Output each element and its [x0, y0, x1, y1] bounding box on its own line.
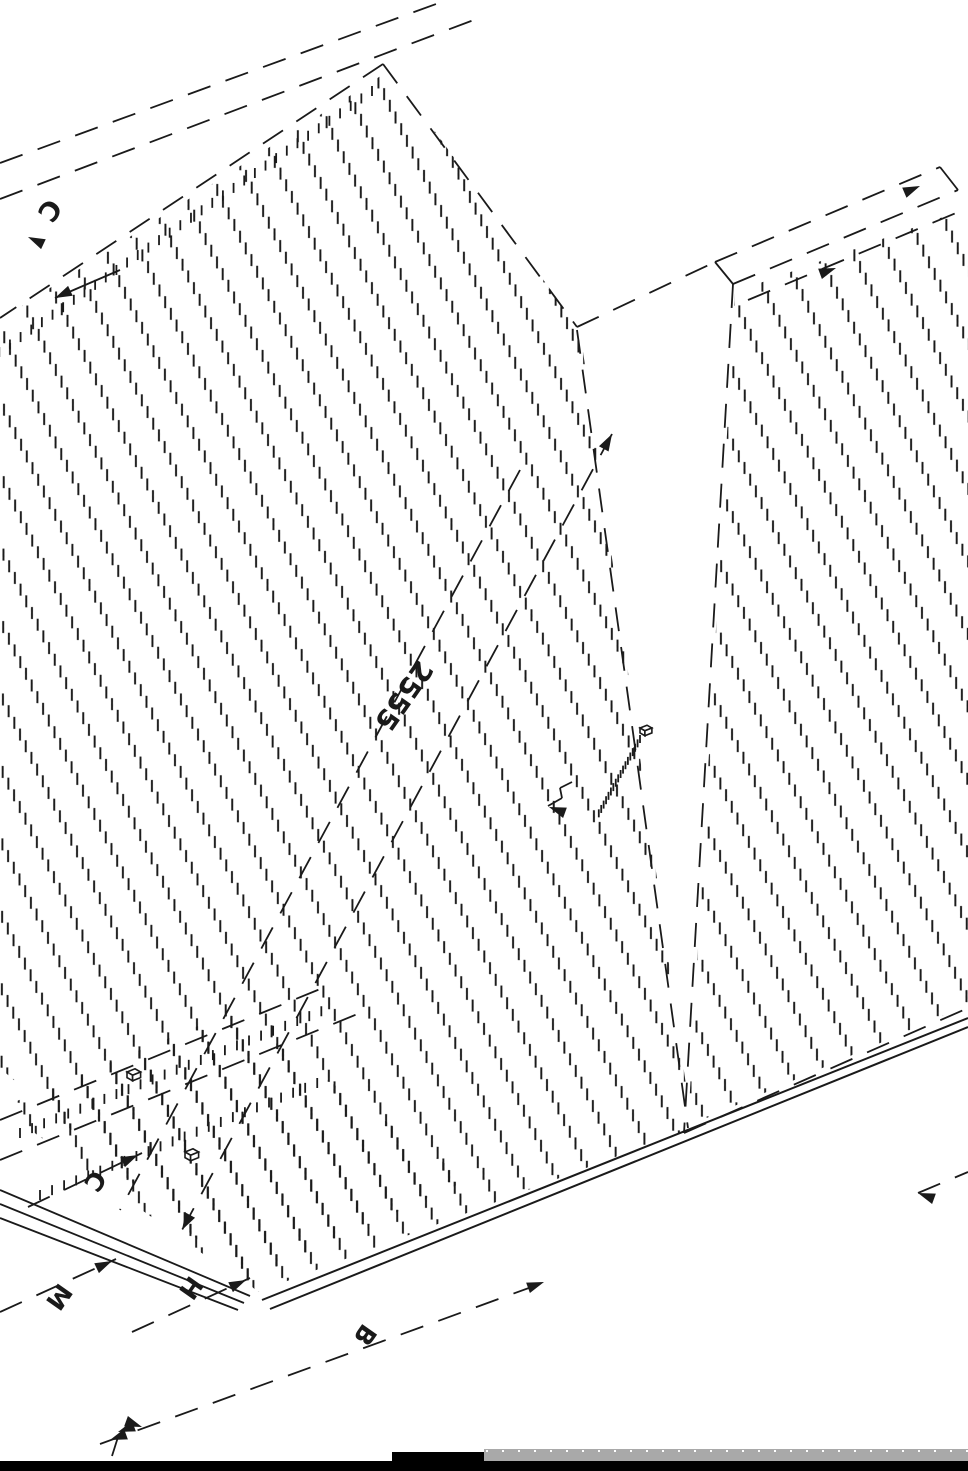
dimension-label-b: B	[348, 1319, 383, 1351]
dimension-arrowhead	[902, 181, 922, 198]
window-chrome	[0, 1449, 968, 1471]
dimension-label-m: M	[40, 1278, 78, 1315]
dimension-arrowhead	[526, 1277, 546, 1293]
dimension-arrowhead	[599, 431, 617, 451]
panel-hatching	[0, 70, 968, 1292]
technical-drawing: C 2555 C M H B	[0, 0, 968, 1471]
dimension-label-c-top: C	[31, 193, 68, 227]
drawing-viewport: C 2555 C M H B	[0, 0, 968, 1471]
window-border-bar	[0, 1461, 968, 1471]
dimension-arrowhead	[26, 232, 46, 249]
